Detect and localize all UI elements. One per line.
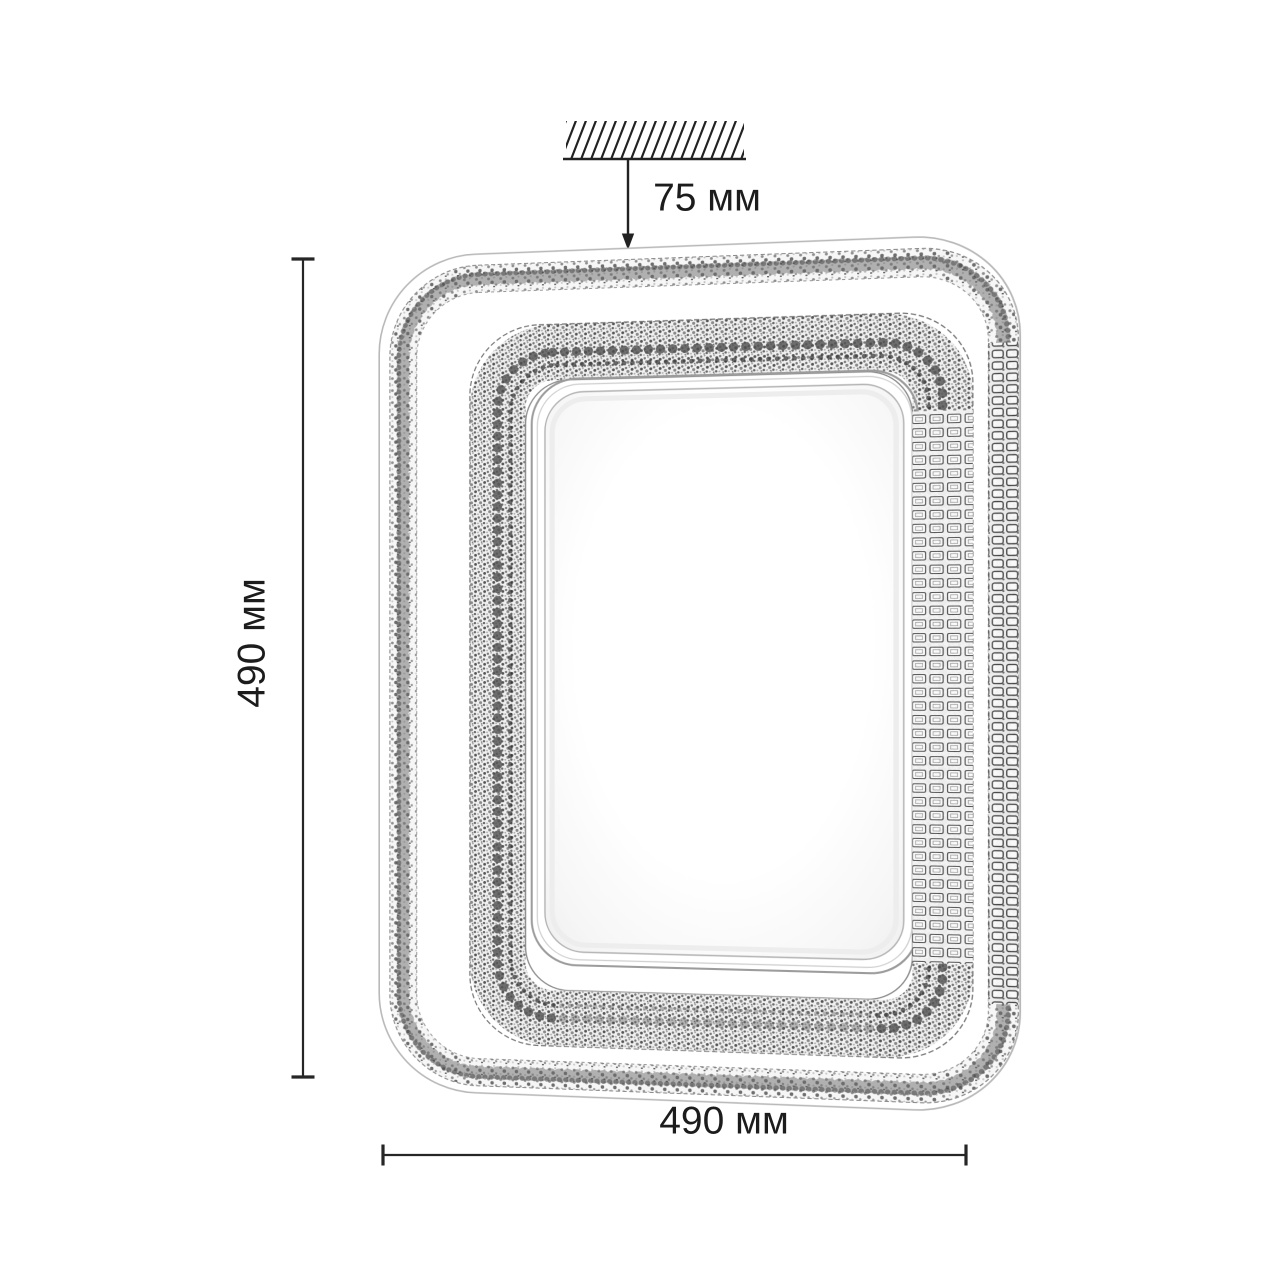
width-dimension-line xyxy=(383,1145,966,1166)
lamp-facet-side-strips xyxy=(912,342,1018,1004)
diagram-canvas: 75 мм 490 мм 490 мм xyxy=(0,0,1280,1280)
height-dimension-line xyxy=(292,259,315,1077)
lamp-illustration xyxy=(378,231,1023,1116)
mount-depth-label: 75 мм xyxy=(653,179,761,218)
lamp-diffuser-panel xyxy=(532,369,918,974)
height-label: 490 мм xyxy=(233,578,272,708)
lamp-band-bottom-shade xyxy=(557,990,873,1057)
width-label: 490 мм xyxy=(659,1102,789,1141)
ceiling-hatch-icon xyxy=(563,121,746,159)
down-arrow-icon xyxy=(622,160,634,250)
